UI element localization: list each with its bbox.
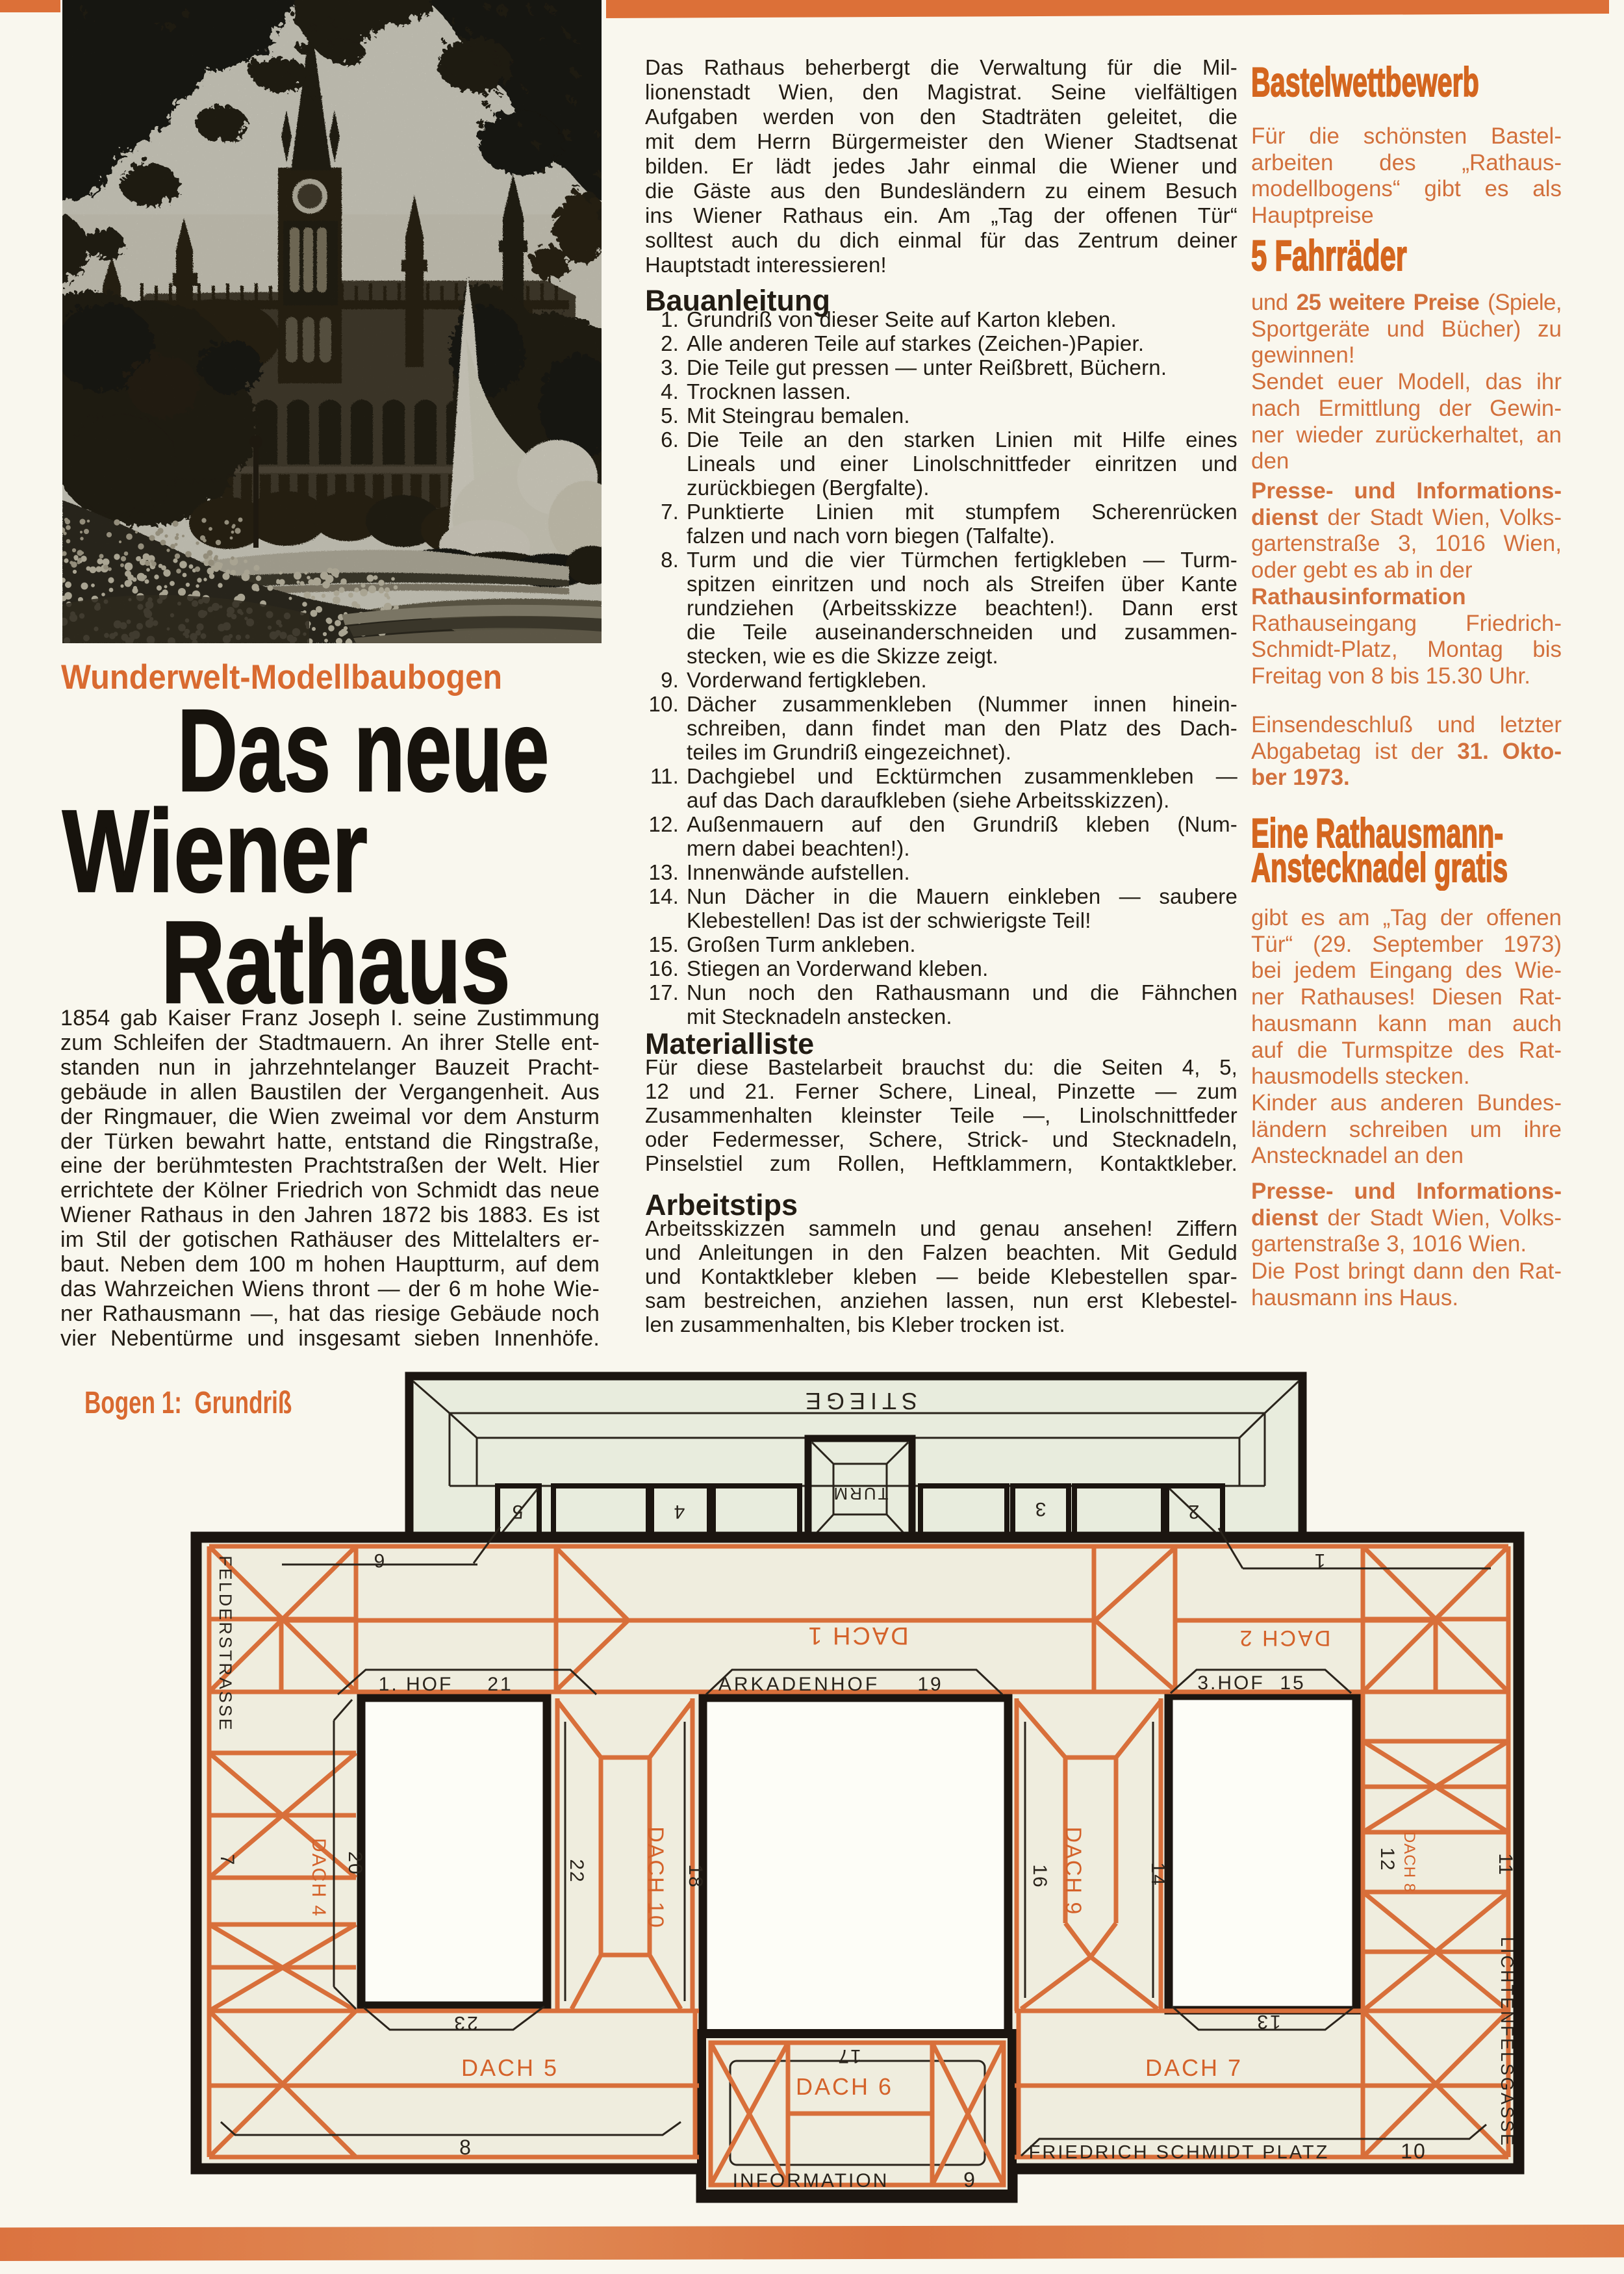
svg-text:1. HOF: 1. HOF xyxy=(379,1674,453,1695)
svg-text:LICHTENFELSGASSE: LICHTENFELSGASSE xyxy=(1497,1937,1517,2147)
svg-text:10: 10 xyxy=(1401,2140,1427,2163)
svg-text:FELDERSTRASSE: FELDERSTRASSE xyxy=(216,1555,235,1732)
svg-text:ARKADENHOF: ARKADENHOF xyxy=(718,1674,880,1695)
svg-text:11: 11 xyxy=(1495,1853,1516,1876)
svg-text:20: 20 xyxy=(344,1851,366,1875)
svg-text:1: 1 xyxy=(1315,1550,1326,1571)
svg-text:6: 6 xyxy=(374,1550,385,1571)
svg-text:DACH 10: DACH 10 xyxy=(643,1826,668,1929)
svg-text:DACH 1: DACH 1 xyxy=(806,1622,908,1649)
svg-text:9: 9 xyxy=(963,2168,975,2191)
svg-text:17: 17 xyxy=(837,2045,861,2067)
svg-text:12: 12 xyxy=(1377,1847,1398,1871)
svg-text:3: 3 xyxy=(1035,1498,1047,1520)
svg-text:18: 18 xyxy=(685,1864,706,1888)
svg-text:DACH 7: DACH 7 xyxy=(1145,2054,1243,2081)
svg-text:7: 7 xyxy=(216,1854,238,1865)
svg-text:DACH 6: DACH 6 xyxy=(796,2073,893,2100)
svg-text:DACH 5: DACH 5 xyxy=(461,2054,559,2081)
svg-text:14: 14 xyxy=(1147,1862,1169,1886)
svg-text:3.HOF: 3.HOF xyxy=(1197,1672,1264,1694)
svg-text:FRIEDRICH SCHMIDT PLATZ: FRIEDRICH SCHMIDT PLATZ xyxy=(1029,2142,1330,2163)
svg-text:DACH 8: DACH 8 xyxy=(1401,1832,1418,1893)
svg-text:22: 22 xyxy=(566,1859,587,1883)
svg-text:8: 8 xyxy=(459,2136,471,2159)
svg-text:4: 4 xyxy=(674,1501,685,1522)
svg-text:DACH 4: DACH 4 xyxy=(308,1838,329,1917)
svg-text:23: 23 xyxy=(452,2012,477,2034)
svg-text:21: 21 xyxy=(487,1674,513,1695)
svg-text:DACH 2: DACH 2 xyxy=(1238,1626,1331,1650)
svg-text:15: 15 xyxy=(1280,1672,1305,1694)
svg-text:INFORMATION: INFORMATION xyxy=(733,2170,889,2191)
svg-text:STIEGE: STIEGE xyxy=(800,1388,917,1414)
svg-text:13: 13 xyxy=(1255,2011,1280,2032)
svg-text:2: 2 xyxy=(1189,1501,1200,1522)
svg-text:5: 5 xyxy=(513,1501,524,1522)
svg-text:19: 19 xyxy=(917,1674,943,1695)
svg-text:TURM: TURM xyxy=(831,1484,888,1503)
svg-text:DACH 9: DACH 9 xyxy=(1061,1827,1085,1916)
svg-text:16: 16 xyxy=(1029,1864,1050,1888)
